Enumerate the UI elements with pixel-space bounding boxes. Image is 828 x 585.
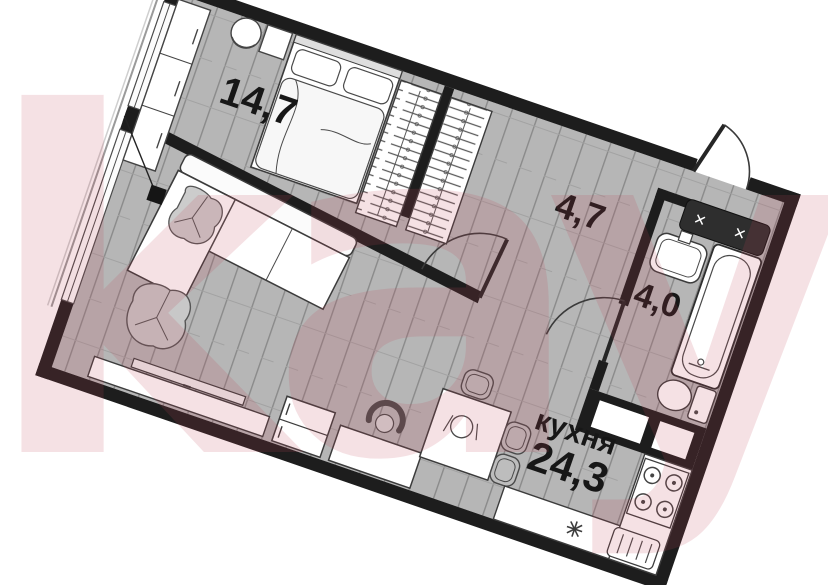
apartment-plan: ✕ ✕ [35,0,801,585]
floorplan-image: ✕ ✕ [0,0,828,585]
